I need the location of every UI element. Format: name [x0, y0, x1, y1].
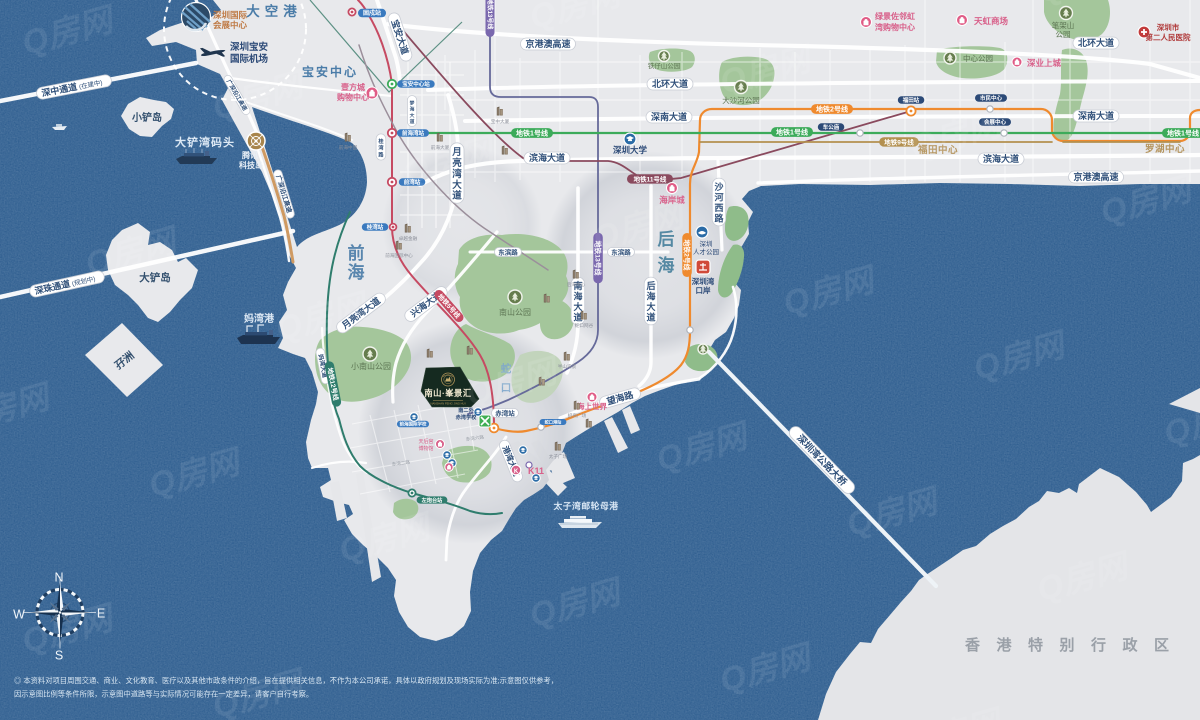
svg-text:E: E: [97, 607, 105, 621]
svg-text:N: N: [54, 571, 63, 585]
svg-text:◎ 本资料对项目周围交通、商业、文化教育、医疗以及其他市政条: ◎ 本资料对项目周围交通、商业、文化教育、医疗以及其他市政条件的介绍，旨在提供相…: [14, 676, 558, 685]
svg-text:因示意图比例等条件所限，示意图中道路等与实际情况可能存在一定: 因示意图比例等条件所限，示意图中道路等与实际情况可能存在一定差异，请客户自行考察…: [14, 690, 313, 699]
svg-text:S: S: [55, 649, 63, 663]
svg-text:W: W: [13, 608, 25, 622]
